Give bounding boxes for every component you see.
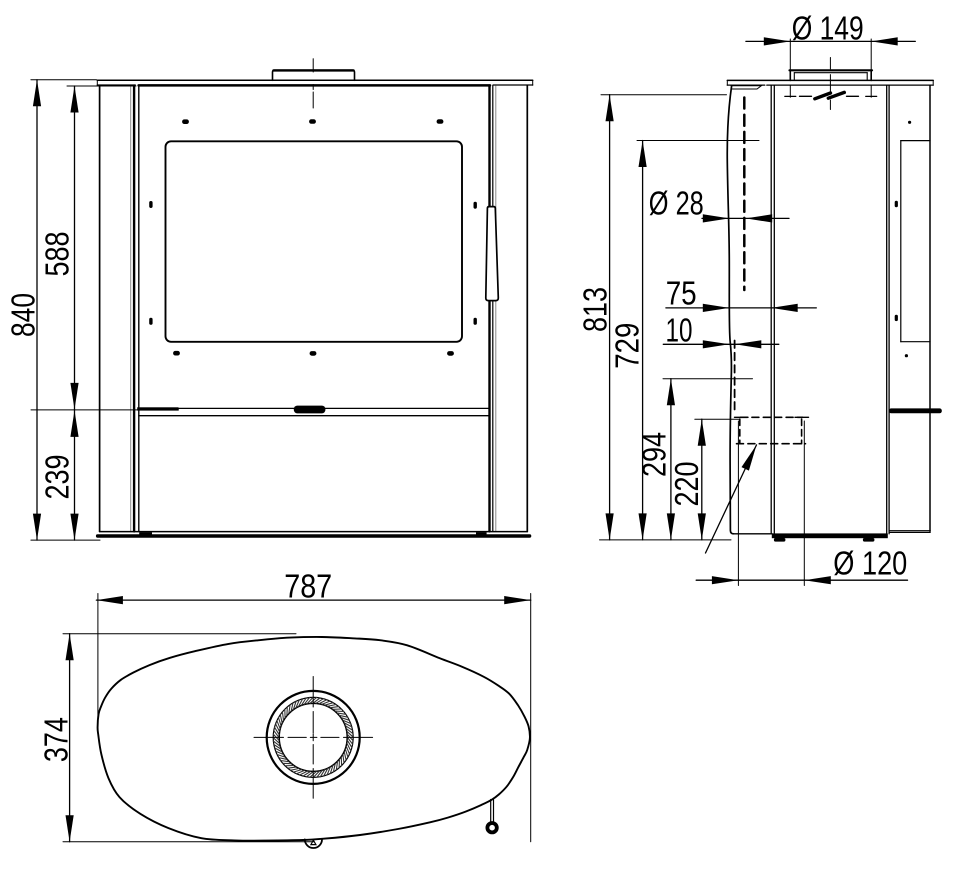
svg-text:Ø 149: Ø 149: [792, 9, 864, 46]
svg-text:374: 374: [38, 717, 75, 762]
svg-text:75: 75: [666, 275, 697, 312]
svg-text:239: 239: [39, 455, 76, 500]
svg-text:588: 588: [39, 232, 76, 277]
svg-text:Ø 120: Ø 120: [833, 545, 907, 582]
svg-text:220: 220: [668, 462, 705, 507]
svg-text:729: 729: [609, 323, 646, 369]
svg-text:294: 294: [636, 432, 673, 477]
svg-text:10: 10: [666, 312, 693, 349]
svg-text:787: 787: [284, 568, 332, 605]
svg-text:840: 840: [5, 293, 42, 337]
svg-text:Ø 28: Ø 28: [649, 185, 704, 222]
